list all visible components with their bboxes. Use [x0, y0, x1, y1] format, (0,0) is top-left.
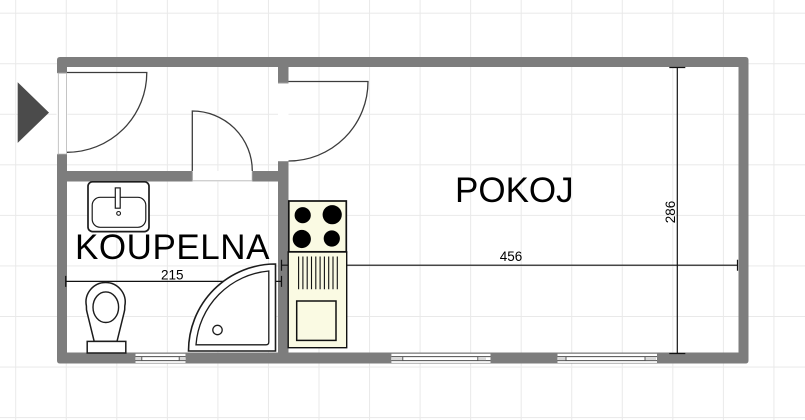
svg-text:456: 456: [500, 249, 523, 264]
svg-text:POKOJ: POKOJ: [455, 171, 574, 210]
svg-text:215: 215: [161, 267, 184, 282]
svg-text:286: 286: [663, 201, 678, 224]
svg-text:KOUPELNA: KOUPELNA: [75, 228, 270, 267]
